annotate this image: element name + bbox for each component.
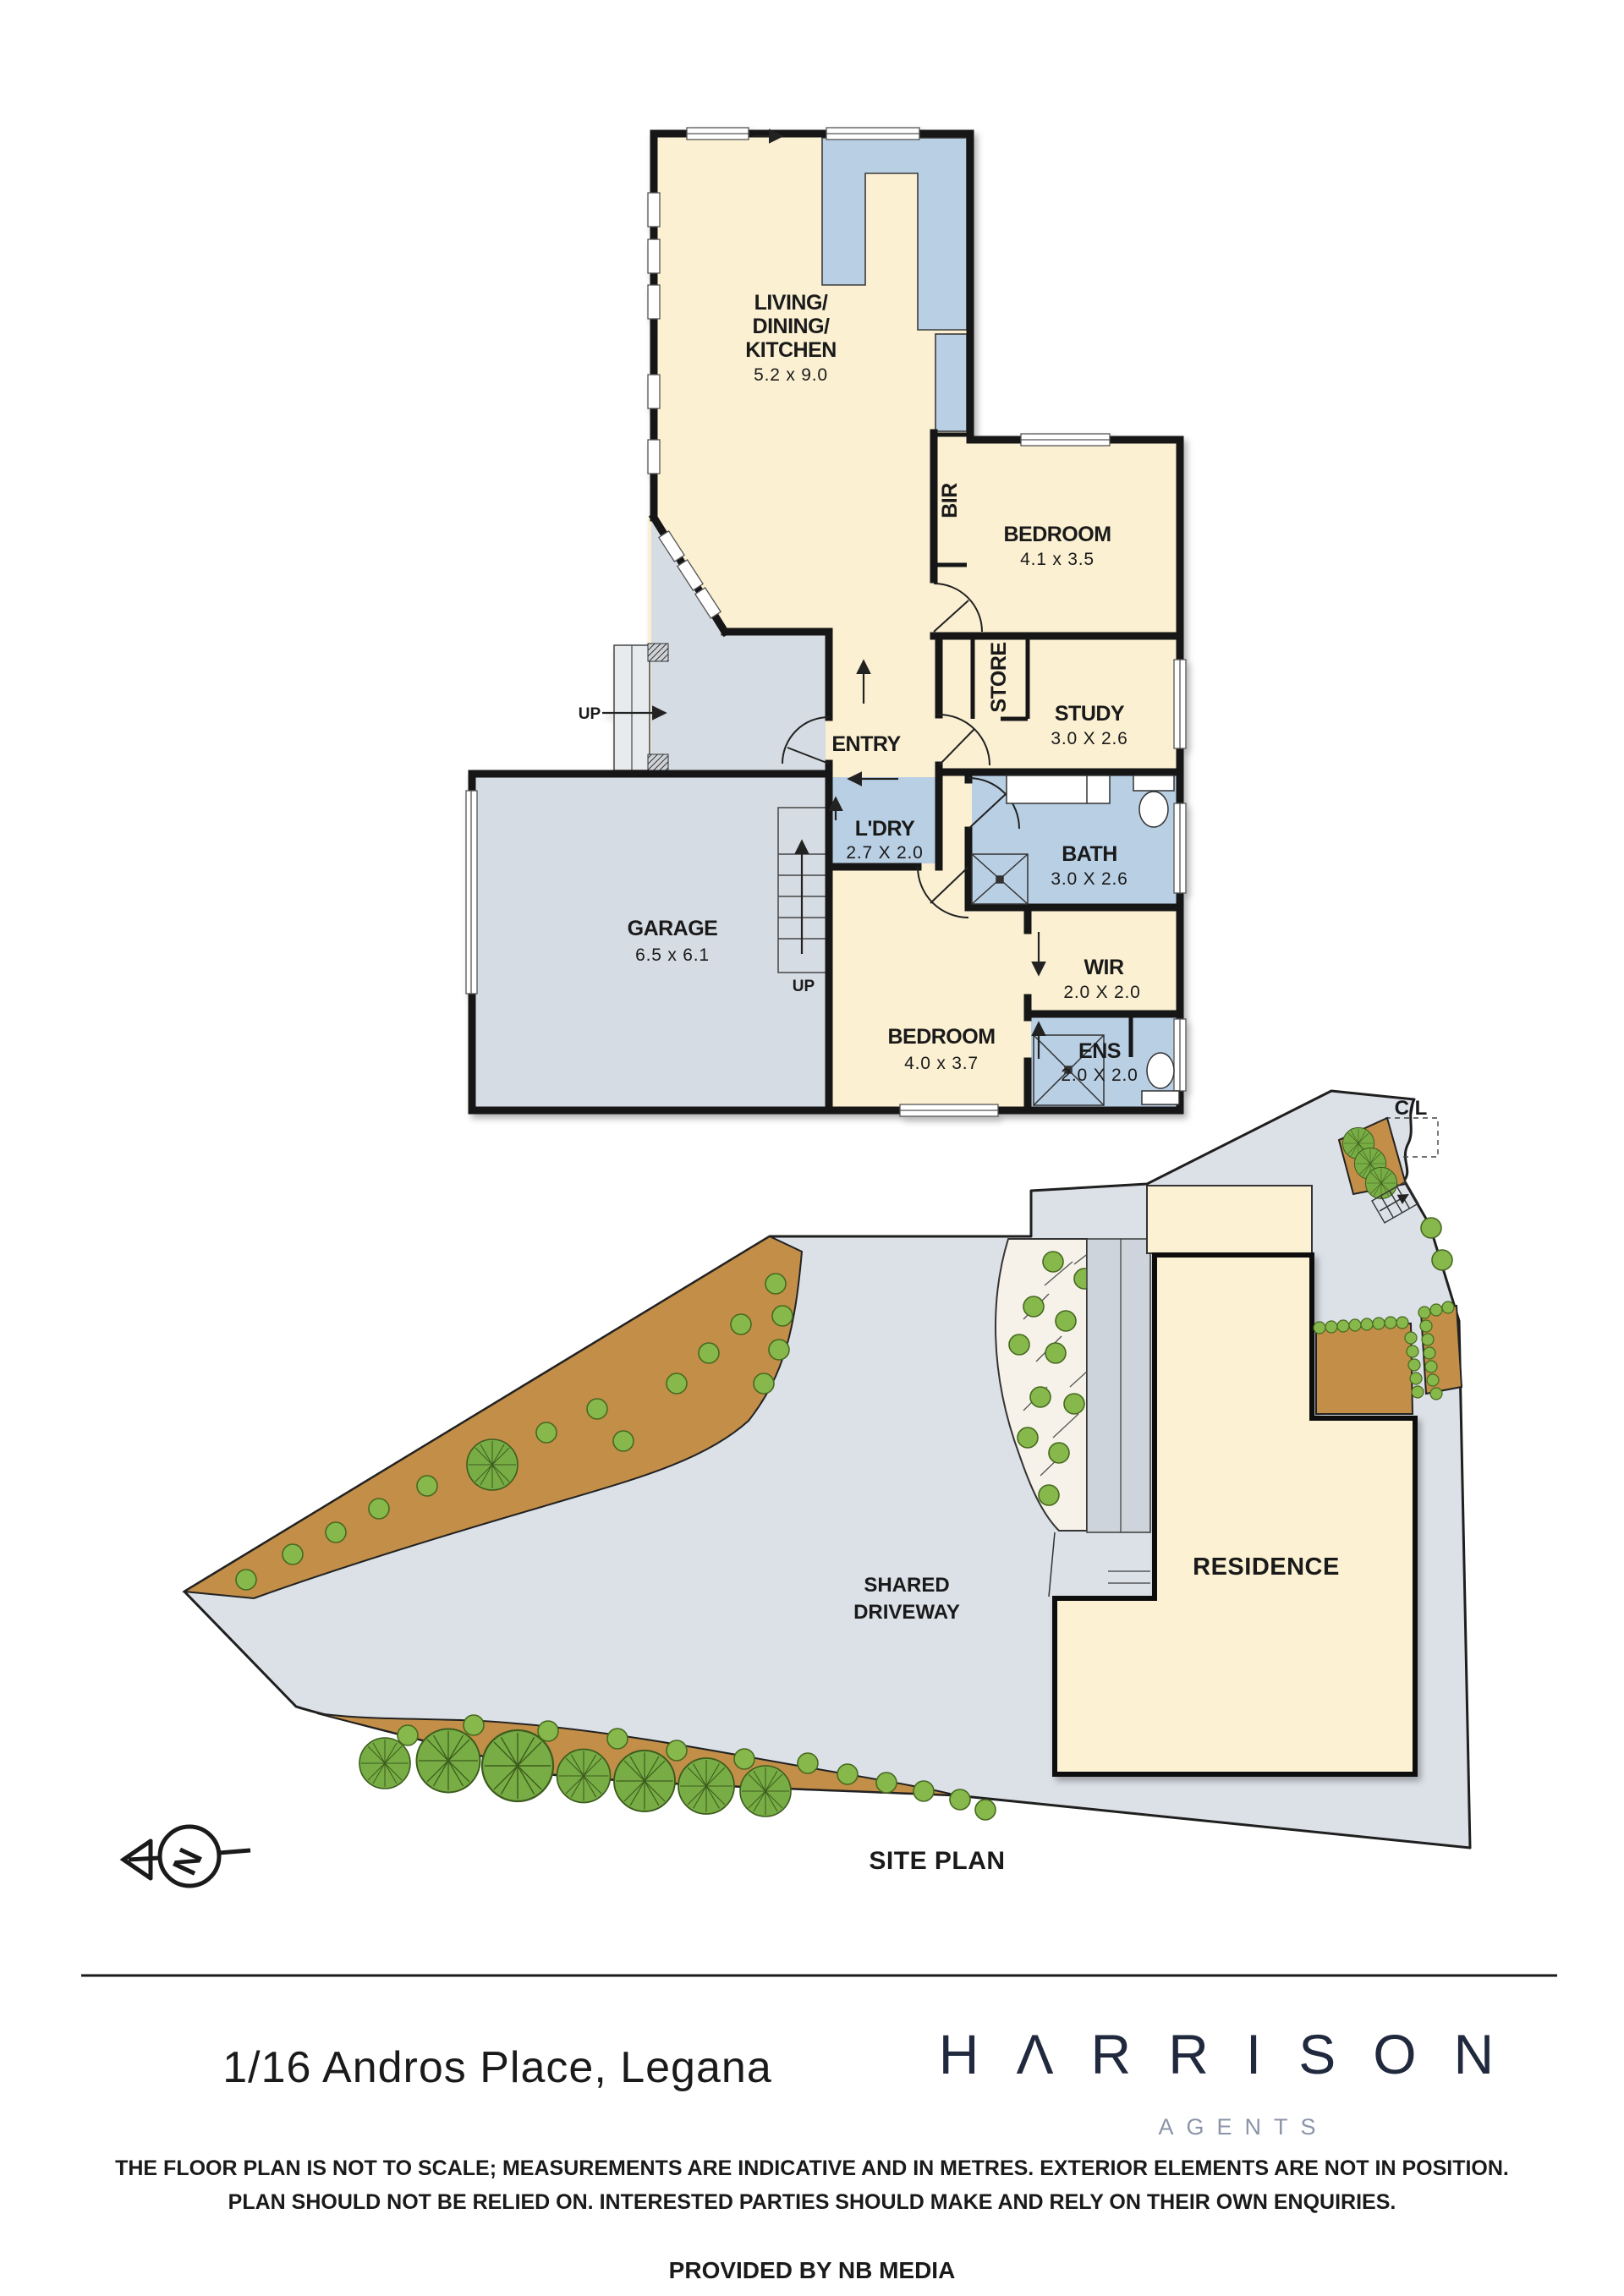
floor-plan <box>466 128 1186 1116</box>
label-ldry: L'DRY <box>855 817 915 841</box>
label-bedroom2: BEDROOM <box>887 1025 995 1049</box>
label-living-2: DINING/ <box>753 315 831 338</box>
label-garage: GARAGE <box>628 917 718 940</box>
label-entry: ENTRY <box>831 732 901 756</box>
label-up-porch: UP <box>579 705 601 723</box>
vanity-icon <box>1007 775 1110 803</box>
label-living-dims: 5.2 x 9.0 <box>754 365 828 385</box>
label-cl: C/L <box>1395 1097 1428 1120</box>
footer: 1/16 Andros Place, Legana HΛRRISON AGENT… <box>81 1975 1557 2283</box>
label-up-stairs: UP <box>793 978 815 995</box>
provided-by: PROVIDED BY NB MEDIA <box>669 2257 956 2283</box>
label-bath: BATH <box>1062 842 1117 866</box>
plan-canvas: LIVING/ DINING/ KITCHEN 5.2 x 9.0 BEDROO… <box>0 0 1624 2296</box>
label-ens: ENS <box>1078 1039 1121 1063</box>
logo-wordmark: HΛRRISON <box>939 2023 1531 2085</box>
site-plan: SHARED DRIVEWAY RESIDENCE C/L SITE PLAN … <box>123 1091 1470 1886</box>
label-driveway: DRIVEWAY <box>853 1601 960 1624</box>
label-study-dims: 3.0 X 2.6 <box>1051 729 1127 748</box>
garage-floor <box>475 777 826 1107</box>
label-store: STORE <box>987 642 1011 712</box>
site-plan-title: SITE PLAN <box>869 1847 1005 1875</box>
floorplan-page: LIVING/ DINING/ KITCHEN 5.2 x 9.0 BEDROO… <box>0 0 1624 2296</box>
label-living-1: LIVING/ <box>754 291 828 315</box>
label-bedroom1: BEDROOM <box>1003 523 1111 546</box>
logo-subtitle: AGENTS <box>1158 2114 1328 2140</box>
residence-top-strip <box>1147 1186 1312 1253</box>
label-ldry-dims: 2.7 X 2.0 <box>846 843 923 863</box>
label-bedroom1-dims: 4.1 x 3.5 <box>1020 550 1095 569</box>
label-bedroom2-dims: 4.0 x 3.7 <box>904 1054 979 1073</box>
address: 1/16 Andros Place, Legana <box>222 2043 771 2092</box>
label-wir-dims: 2.0 X 2.0 <box>1063 983 1140 1002</box>
garden-bed-notch <box>1316 1323 1413 1414</box>
label-shared: SHARED <box>864 1574 949 1597</box>
label-study: STUDY <box>1055 702 1125 726</box>
label-living-3: KITCHEN <box>745 338 837 362</box>
label-residence: RESIDENCE <box>1193 1553 1340 1581</box>
label-bath-dims: 3.0 X 2.6 <box>1051 869 1127 889</box>
label-garage-dims: 6.5 x 6.1 <box>635 945 710 965</box>
compass-icon: N <box>123 1827 250 1886</box>
disclaimer-line1: THE FLOOR PLAN IS NOT TO SCALE; MEASUREM… <box>115 2156 1509 2180</box>
label-ens-dims: 2.0 X 2.0 <box>1061 1066 1138 1085</box>
label-wir: WIR <box>1084 956 1124 979</box>
label-bir: BIR <box>938 483 962 518</box>
disclaimer-line2: PLAN SHOULD NOT BE RELIED ON. INTERESTED… <box>228 2190 1396 2214</box>
